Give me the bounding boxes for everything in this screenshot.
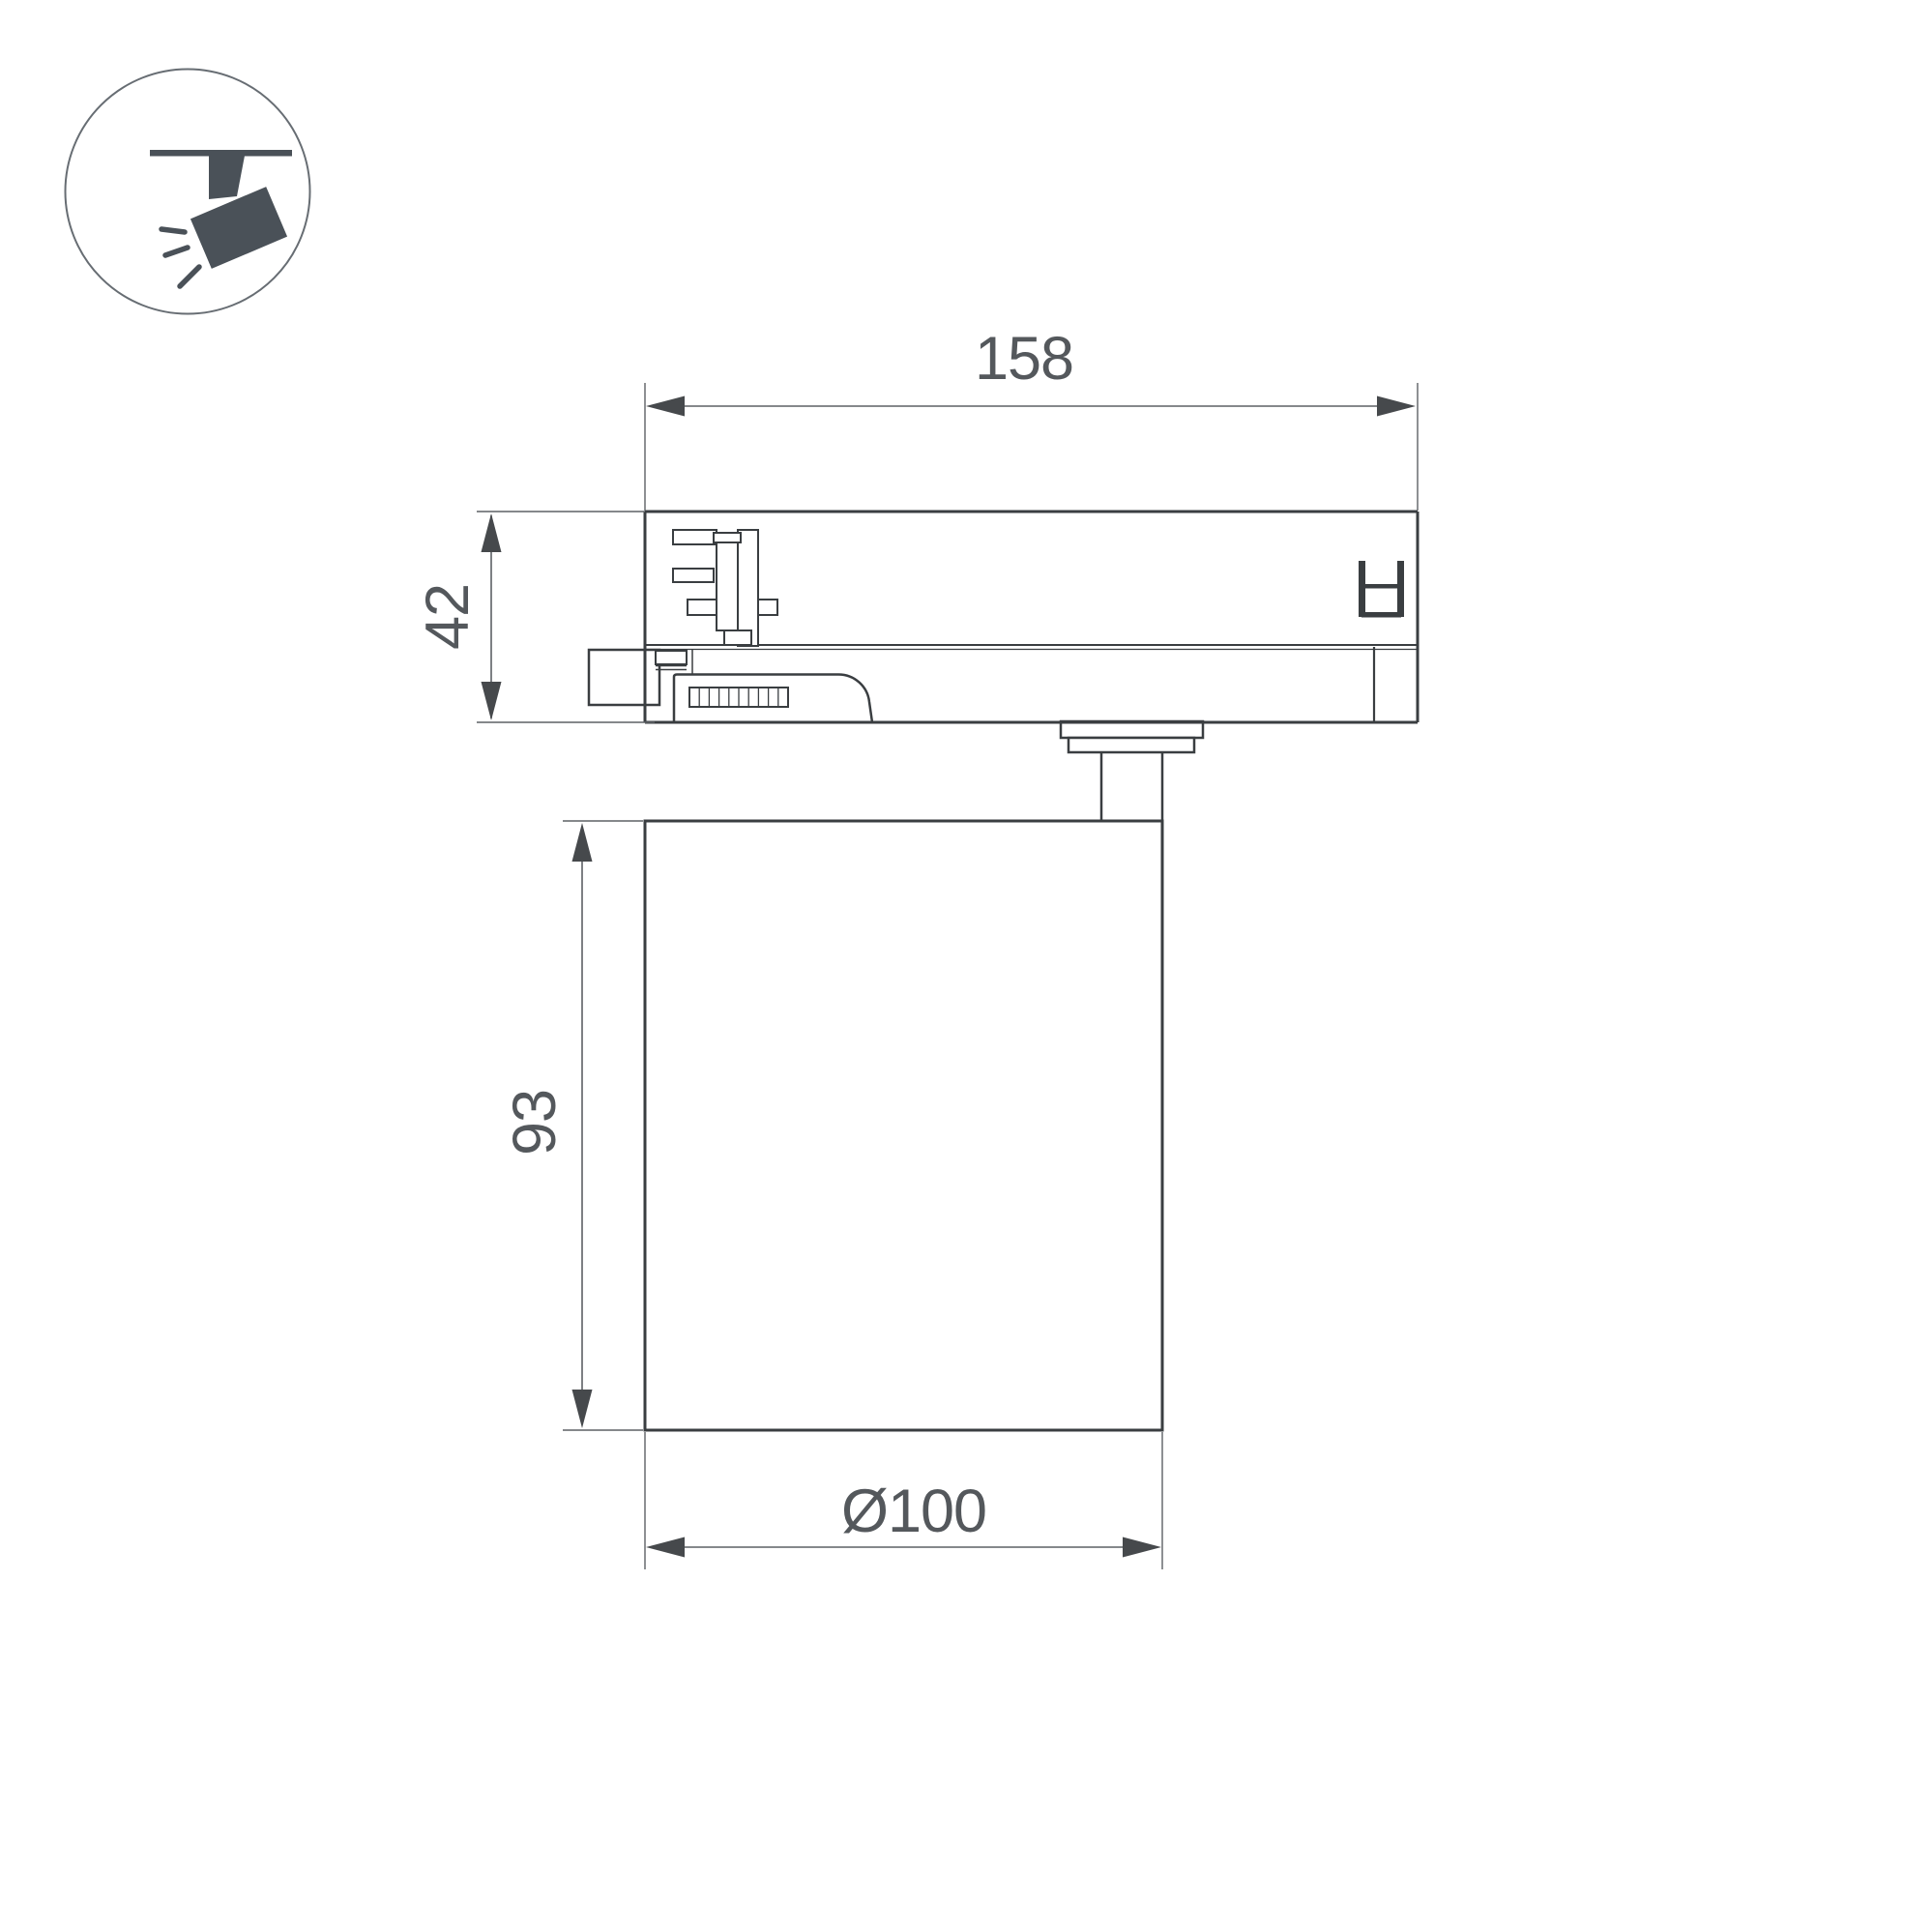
dimension-body-height: 93 <box>501 821 643 1430</box>
flange-upper-step <box>1061 721 1203 738</box>
dimension-width: 158 <box>645 325 1418 511</box>
adapter-height-arrow-bottom <box>482 682 502 720</box>
technical-drawing-page: 158 42 93 Ø100 <box>0 0 1932 1932</box>
adapter-height-arrow-top <box>482 513 502 552</box>
prong-pin-cap <box>714 533 741 542</box>
icon-track-bar <box>150 150 292 157</box>
track-light-dimension-drawing: 158 42 93 Ø100 <box>0 0 1932 1932</box>
lever-notch <box>656 651 687 664</box>
diameter-arrow-left <box>646 1537 685 1558</box>
track-spotlight-icon <box>66 70 310 314</box>
adapter-height-dimension-label: 42 <box>414 584 482 650</box>
lamp-body <box>645 821 1162 1430</box>
width-dimension-label: 158 <box>975 325 1073 393</box>
contact-prong-assembly <box>673 530 777 646</box>
clip-cross-bar <box>1365 584 1397 589</box>
diameter-arrow-right <box>1123 1537 1161 1558</box>
body-height-dimension-label: 93 <box>501 1090 569 1156</box>
prong-center-pin <box>717 542 738 630</box>
clip-left-bar <box>1359 561 1365 617</box>
body-height-arrow-bottom <box>572 1390 593 1428</box>
clip-right-bar <box>1397 561 1404 617</box>
clip-bottom-bar <box>1361 612 1401 618</box>
diameter-dimension-label: Ø100 <box>841 1478 986 1545</box>
track-adapter-outline <box>589 512 1418 821</box>
flange-lower-step <box>1068 738 1194 752</box>
prong-top <box>673 530 717 544</box>
prong-body <box>738 530 758 646</box>
prong-bottom <box>688 600 717 615</box>
swivel-joint <box>1061 721 1203 821</box>
width-arrow-right <box>1377 396 1416 417</box>
dimension-diameter: Ø100 <box>645 1432 1162 1569</box>
retaining-clip <box>1359 561 1404 618</box>
prong-right-tab <box>758 600 777 615</box>
width-arrow-left <box>646 396 685 417</box>
prong-middle <box>673 569 714 582</box>
lever-box <box>589 650 659 705</box>
body-height-arrow-top <box>572 823 593 862</box>
phase-selector-dial <box>674 674 872 722</box>
prong-foot <box>724 630 751 645</box>
